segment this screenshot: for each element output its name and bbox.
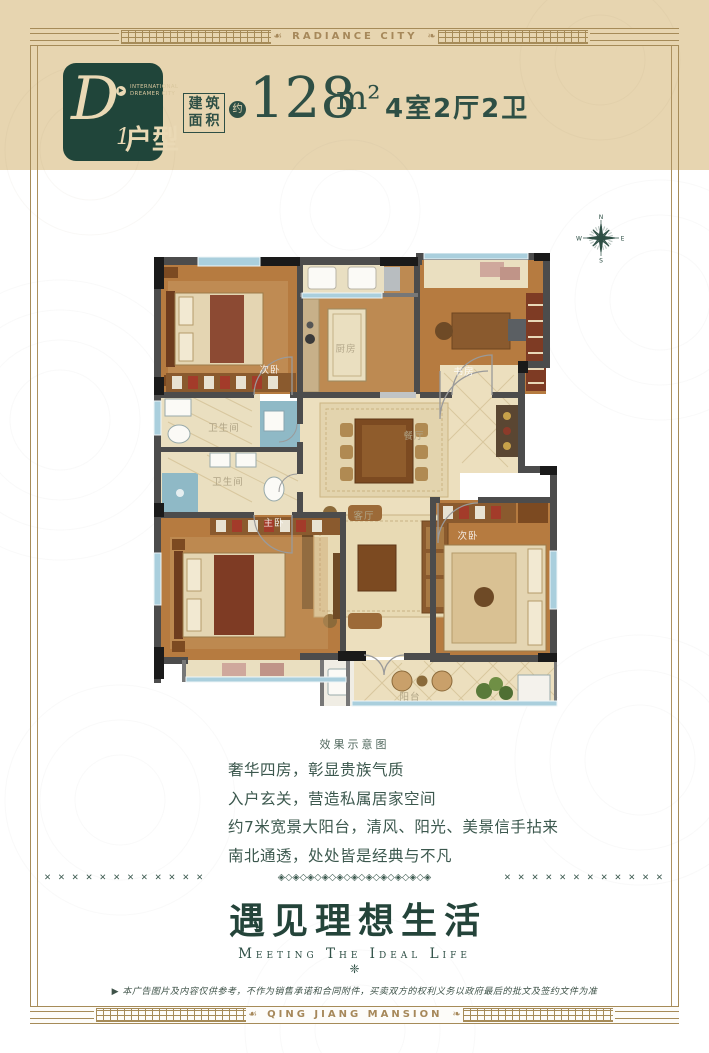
unit-type-label: 户型: [125, 118, 179, 157]
fret-pattern: [463, 1008, 613, 1022]
poster-page: ☙ RADIANCE CITY ❧ D 1 户型 ▶ INTERNATIONAL…: [0, 0, 709, 1053]
area-unit: m²: [336, 78, 381, 118]
svg-text:客厅: 客厅: [353, 510, 374, 522]
unit-letter: D: [71, 69, 119, 129]
brand-text: INTERNATIONAL DREAMER CITY: [130, 84, 178, 98]
svg-text:阳台: 阳台: [399, 691, 420, 703]
divider-right: ✕ ✕ ✕ ✕ ✕ ✕ ✕ ✕ ✕ ✕ ✕ ✕: [504, 873, 665, 883]
slogan-subtitle: Meeting The Ideal Life: [0, 946, 709, 962]
kitchen-slide-door: [380, 392, 416, 398]
rooms-summary: 4室2厅2卫: [385, 88, 529, 125]
svg-text:W: W: [576, 236, 582, 243]
slogan-title: 遇见理想生活: [0, 892, 709, 944]
band-line: [590, 33, 679, 41]
entry-cabinet: [496, 405, 518, 457]
floor-plan: 次卧 厨房 书房 卫生间 卫生间 餐厅 客厅 主卧 次卧 阳台: [152, 253, 562, 713]
description-line: 约7米宽景大阳台，清风、阳光、美景信手拈来: [228, 813, 558, 842]
disclaimer-text: ▶ 本广告图片及内容仅供参考，不作为销售承诺和合同附件，买卖双方的权利义务以政府…: [0, 984, 709, 997]
scroll-ornament-icon: ❧: [427, 30, 435, 44]
bottom-banner-text: QING JIANG MANSION: [257, 1008, 452, 1022]
top-banner-text: RADIANCE CITY: [282, 30, 427, 44]
fret-pattern: [121, 30, 271, 44]
scroll-ornament-icon: ☙: [248, 1008, 257, 1022]
fret-pattern: [96, 1008, 246, 1022]
svg-text:主卧: 主卧: [263, 517, 284, 529]
svg-text:厨房: 厨房: [335, 343, 356, 355]
approx-circle: 约: [229, 101, 246, 118]
svg-text:N: N: [599, 214, 604, 221]
fret-pattern: [438, 30, 588, 44]
scroll-ornament-icon: ☙: [273, 30, 282, 44]
divider-chain: ◈◇◈◇◈◇◈◇◈◇◈◇◈◇◈◇◈◇◈◇◈: [278, 872, 431, 883]
svg-text:书房: 书房: [453, 366, 474, 378]
svg-text:卫生间: 卫生间: [208, 422, 240, 434]
play-icon: ▶: [116, 86, 126, 96]
flower-ornament-icon: ❈: [0, 962, 709, 976]
band-line: [615, 1011, 679, 1019]
compass-icon: N E S W: [576, 213, 626, 263]
description-block: 奢华四房，彰显贵族气质 入户玄关，营造私属居家空间 约7米宽景大阳台，清风、阳光…: [228, 756, 558, 870]
svg-text:餐厅: 餐厅: [403, 430, 424, 442]
svg-text:S: S: [599, 258, 603, 264]
band-line: [30, 1011, 94, 1019]
description-line: 奢华四房，彰显贵族气质: [228, 756, 558, 785]
area-label-box: 建筑 面积: [183, 93, 225, 133]
top-banner-band: ☙ RADIANCE CITY ❧: [30, 28, 679, 46]
scroll-ornament-icon: ❧: [452, 1008, 460, 1022]
svg-text:E: E: [621, 236, 625, 243]
svg-text:次卧: 次卧: [259, 364, 280, 376]
description-line: 南北通透，处处皆是经典与不凡: [228, 842, 558, 871]
svg-text:卫生间: 卫生间: [212, 476, 244, 488]
divider-left: ✕ ✕ ✕ ✕ ✕ ✕ ✕ ✕ ✕ ✕ ✕ ✕: [44, 873, 205, 883]
band-line: [30, 33, 119, 41]
svg-text:次卧: 次卧: [457, 530, 478, 542]
bottom-banner-band: ☙ QING JIANG MANSION ❧: [30, 1006, 679, 1024]
floorplan-caption: 效果示意图: [0, 736, 709, 752]
unit-type-badge: D 1 户型 ▶ INTERNATIONAL DREAMER CITY: [63, 63, 163, 161]
ornamental-divider: ✕ ✕ ✕ ✕ ✕ ✕ ✕ ✕ ✕ ✕ ✕ ✕ ◈◇◈◇◈◇◈◇◈◇◈◇◈◇◈◇…: [44, 872, 665, 883]
description-line: 入户玄关，营造私属居家空间: [228, 785, 558, 814]
